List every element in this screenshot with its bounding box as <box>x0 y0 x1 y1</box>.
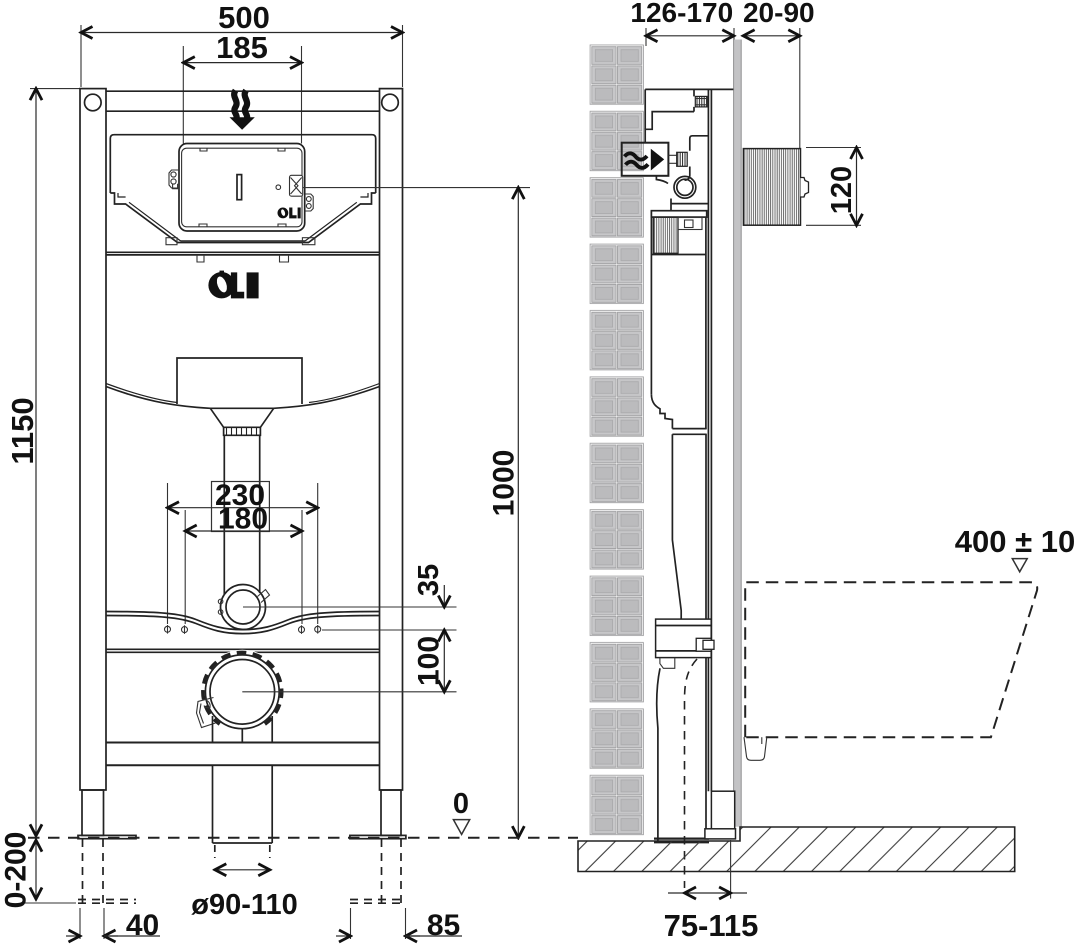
svg-text:1150: 1150 <box>5 397 40 464</box>
svg-text:400 ± 10: 400 ± 10 <box>955 524 1075 559</box>
svg-text:ø90-110: ø90-110 <box>191 889 297 921</box>
svg-text:180: 180 <box>218 503 268 536</box>
svg-text:126-170: 126-170 <box>630 0 733 28</box>
svg-text:35: 35 <box>413 564 445 596</box>
svg-text:0: 0 <box>453 788 469 820</box>
svg-text:120: 120 <box>826 166 858 214</box>
svg-text:0-200: 0-200 <box>0 832 33 909</box>
svg-text:100: 100 <box>413 636 446 686</box>
svg-text:1000: 1000 <box>488 450 521 517</box>
svg-text:20-90: 20-90 <box>743 0 815 28</box>
svg-text:85: 85 <box>427 909 460 942</box>
svg-text:40: 40 <box>126 909 159 942</box>
svg-text:185: 185 <box>216 30 268 65</box>
svg-text:75-115: 75-115 <box>664 908 759 943</box>
